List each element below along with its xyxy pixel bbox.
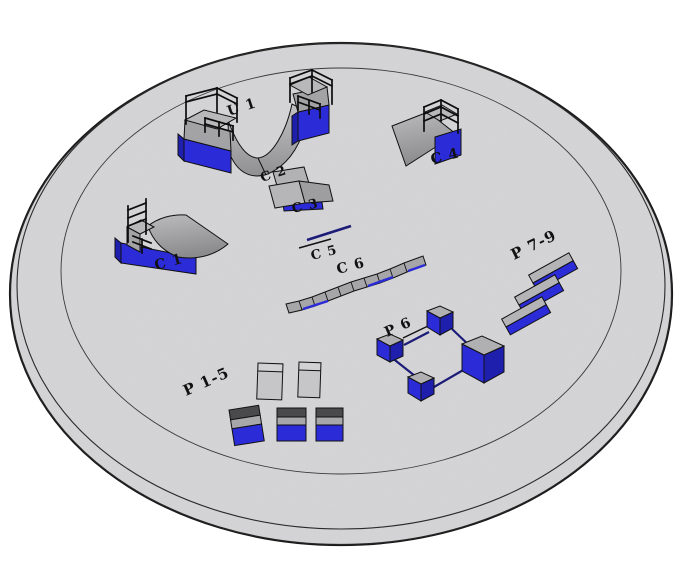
skatepark-scene: U 1 C 1 C 4 C 2	[0, 0, 680, 579]
p15-pad-2	[298, 362, 321, 398]
p15-pad-1	[257, 363, 283, 400]
p15-box-3	[316, 408, 343, 441]
p15-box-2	[277, 408, 306, 441]
skatepark-diagram: U 1 C 1 C 4 C 2	[0, 0, 680, 579]
p15-box-1	[229, 405, 264, 445]
u1-right-base-side	[292, 112, 298, 145]
